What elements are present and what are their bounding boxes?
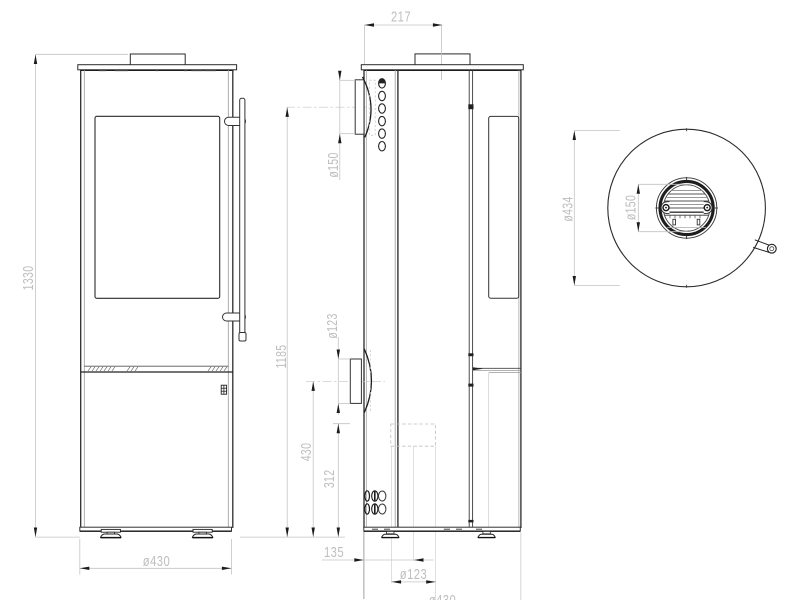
svg-text:ø150: ø150 <box>622 195 639 220</box>
svg-text:135: 135 <box>324 543 344 560</box>
svg-text:ø430: ø430 <box>143 552 170 569</box>
svg-text:ø123: ø123 <box>323 313 340 338</box>
svg-text:430: 430 <box>297 443 314 462</box>
svg-text:ø434: ø434 <box>559 196 576 221</box>
svg-text:ø123: ø123 <box>400 566 427 583</box>
svg-text:217: 217 <box>391 8 411 25</box>
svg-text:ø430: ø430 <box>429 591 456 600</box>
svg-text:1330: 1330 <box>19 266 36 291</box>
svg-text:312: 312 <box>320 470 337 489</box>
svg-text:ø150: ø150 <box>324 152 341 177</box>
svg-text:1185: 1185 <box>272 345 289 369</box>
